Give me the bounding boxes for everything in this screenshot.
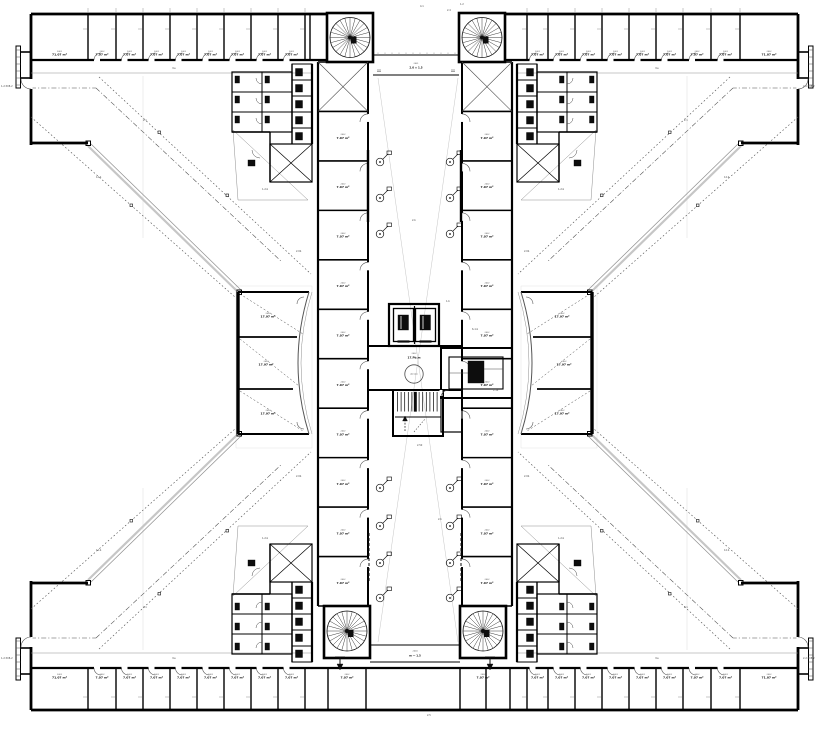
room-outline — [441, 398, 462, 432]
annotation-label: 2-2.508-2 — [803, 85, 815, 88]
room-area-label: 7.07 m² — [177, 676, 191, 680]
room-area-label: 7.07 m² — [481, 334, 495, 338]
room-area-label: 7.07 m² — [337, 581, 351, 585]
main-stair — [393, 390, 443, 436]
annotation-label: ms — [655, 67, 659, 70]
wall-line — [453, 190, 459, 196]
plan-path — [526, 297, 533, 304]
room-area-label: 7.07 m² — [481, 482, 495, 486]
plan-path — [297, 297, 304, 304]
room-area-label: 7.07 m² — [691, 53, 705, 57]
room-outline — [414, 392, 417, 412]
room-outline — [468, 361, 484, 383]
quadrant-bottom-left — [16, 429, 312, 680]
annotation-label: 1-2.508-2 — [1, 85, 13, 88]
room-area-label: 7.07 m² — [663, 53, 677, 57]
annotation-label: ms — [172, 657, 176, 660]
annotation-label: 2.b — [438, 518, 442, 521]
room-area-label: 7.07 m² — [691, 676, 705, 680]
room-area-label: 71.07 m² — [762, 53, 778, 57]
room-area-label: 7.07 m² — [150, 676, 164, 680]
annotation-label: 2.0b — [524, 475, 530, 478]
mid-right-rooms: 240217.97 m²240217.97 m²240217.97 m² — [518, 292, 592, 434]
room-area-label: 7.07 m² — [481, 383, 495, 387]
top-bridge: 24012.0 × 1.5 — [373, 53, 459, 76]
annotation-label: 1.14 — [493, 389, 499, 392]
annotation-label: 1-2.508-2 — [1, 657, 13, 660]
left-room-column: 24027.07 m²24027.07 m²24027.07 m²24027.0… — [318, 62, 369, 606]
room-area-label: 7.07 m² — [477, 676, 491, 680]
plan-label: 2401 — [413, 63, 419, 65]
right-room-column: 24027.07 m²24027.07 m²24027.07 m²24027.0… — [461, 62, 512, 606]
annotation-label: 1-2.b — [558, 188, 565, 191]
wall-line — [453, 154, 459, 160]
annotation-label: 12.b — [724, 549, 730, 552]
room-area-label: 7.07 m² — [481, 284, 495, 288]
room-area-label: 17.97 m² — [261, 412, 277, 416]
wall-line — [453, 226, 459, 232]
wall-line — [453, 590, 459, 596]
quadrant-top-right — [517, 46, 813, 297]
service-core-cluster — [232, 544, 312, 662]
room-area-label: 7.07 m² — [531, 676, 545, 680]
annotation-label: 1-2.b — [262, 537, 269, 540]
central-core: 240217.Pb.mØ1500 — [368, 304, 512, 436]
annotation-label: 2.1 — [684, 606, 688, 609]
room-area-label: 7.07 m² — [337, 383, 351, 387]
room-area-label: 7.07 m² — [609, 53, 623, 57]
room-area-label: 7.07 m² — [204, 53, 218, 57]
room-area-label: 7.07 m² — [337, 185, 351, 189]
room-area-label: 17.97 m² — [261, 315, 277, 319]
room-area-label: 17.97 m² — [557, 363, 573, 367]
room-area-label: 7.07 m² — [337, 433, 351, 437]
room-area-label: 7.07 m² — [337, 482, 351, 486]
room-area-label: 71.07 m² — [762, 676, 778, 680]
service-core-cluster — [517, 544, 597, 662]
room-area-label: 7.07 m² — [285, 676, 299, 680]
annotation-label: 12.b — [96, 549, 102, 552]
wall-line — [383, 555, 389, 561]
room-area-label: 7.07 m² — [719, 53, 733, 57]
room-area-label: 71.07 m² — [52, 676, 68, 680]
annotation-label: 12.b — [96, 176, 102, 179]
mid-left-rooms: 240217.97 m²240217.97 m²240217.97 m² — [238, 292, 312, 434]
annotation-label: 2.1 — [684, 119, 688, 122]
room-area-label: 7.07 m² — [582, 53, 596, 57]
quadrant-bottom-right — [517, 429, 813, 680]
plan-path — [298, 292, 309, 434]
plan-label: 2.0 × 1.5 — [409, 66, 422, 70]
quadrant-top-left — [16, 46, 312, 297]
room-area-label: 7.07 m² — [231, 676, 245, 680]
room-area-label: 7.07 m² — [481, 235, 495, 239]
room-area-label: 71.07 m² — [52, 53, 68, 57]
construction-lines — [143, 76, 687, 650]
annotation-label: 2.50 — [417, 444, 423, 447]
annotation-label: 2.0b — [296, 250, 302, 253]
plan-label: 17.Pb.m — [408, 356, 421, 360]
room-area-label: 17.97 m² — [555, 412, 571, 416]
room-area-label: 7.07 m² — [555, 676, 569, 680]
wall-line — [453, 480, 459, 486]
annotation-label: 6-1.b — [472, 328, 479, 331]
annotation-label: 2.0b — [296, 475, 302, 478]
room-area-label: 17.97 m² — [555, 315, 571, 319]
room-area-label: 7.07 m² — [285, 53, 299, 57]
annotation-label: 1.2 — [460, 3, 464, 6]
room-area-label: 7.07 m² — [337, 136, 351, 140]
plan-label: m — 1.5 — [409, 654, 421, 658]
wall-line — [383, 518, 389, 524]
annotation-label: 4.1 — [420, 5, 424, 8]
room-area-label: 7.07 m² — [481, 531, 495, 535]
plan-path — [301, 292, 312, 434]
bottom-wing: 240271.07 m²24027.07 m²24027.07 m²24027.… — [31, 668, 798, 710]
room-area-label: 7.07 m² — [177, 53, 191, 57]
room-area-label: 7.07 m² — [609, 676, 623, 680]
stair-tower — [460, 606, 506, 658]
lift-lobby: 240217.Pb.mØ1500 — [368, 346, 462, 390]
annotation-label: 12.b — [724, 176, 730, 179]
room-outline — [393, 390, 443, 436]
floor-plan-canvas: 240271.07 m²24027.07 m²24027.07 m²24027.… — [0, 0, 833, 732]
room-area-label: 7.07 m² — [231, 53, 245, 57]
room-area-label: 7.07 m² — [481, 136, 495, 140]
wall-line — [383, 154, 389, 160]
wall-line — [453, 518, 459, 524]
annotation-label: ms — [172, 67, 176, 70]
room-area-label: 7.07 m² — [96, 676, 110, 680]
room-area-label: 7.07 m² — [481, 581, 495, 585]
annotation-label: 2.4 — [447, 9, 451, 12]
room-area-label: 7.07 m² — [123, 53, 137, 57]
room-area-label: 7.07 m² — [337, 284, 351, 288]
annotation-label: 2.5 — [427, 714, 431, 717]
room-area-label: 7.07 m² — [258, 53, 272, 57]
room-area-label: 7.07 m² — [555, 53, 569, 57]
room-outline — [398, 315, 409, 330]
plan-path — [518, 292, 529, 434]
room-area-label: 7.07 m² — [150, 53, 164, 57]
room-area-label: 7.07 m² — [123, 676, 137, 680]
floor-plan: 240271.07 m²24027.07 m²24027.07 m²24027.… — [0, 0, 833, 732]
room-outline — [236, 286, 312, 448]
annotation-label: 2.0b — [524, 250, 530, 253]
stair-tower — [324, 606, 370, 658]
stair-tower — [327, 13, 373, 62]
room-area-label: 7.07 m² — [481, 185, 495, 189]
annotation-label: ms — [655, 657, 659, 660]
service-core-cluster — [232, 64, 312, 182]
room-area-label: 17.97 m² — [259, 363, 275, 367]
top-wing: 240271.07 m²24027.07 m²24027.07 m²24027.… — [31, 8, 798, 60]
service-core-cluster — [517, 64, 597, 182]
room-area-label: 7.07 m² — [531, 53, 545, 57]
room-area-label: 7.07 m² — [96, 53, 110, 57]
wall-line — [414, 419, 425, 432]
wall-line — [383, 480, 389, 486]
room-area-label: 7.07 m² — [337, 235, 351, 239]
room-area-label: 7.07 m² — [636, 53, 650, 57]
plan-label: Ø1500 — [410, 373, 418, 376]
wall-line — [453, 555, 459, 561]
annotation-label: 1.b — [446, 300, 450, 303]
stair-tower — [459, 13, 505, 62]
plan-path — [521, 292, 532, 434]
room-area-label: 7.07 m² — [341, 676, 355, 680]
annotation-label: 2.b — [412, 219, 416, 222]
room-area-label: 7.07 m² — [719, 676, 733, 680]
annotations: 4.12.41.2msmsmsms2.12.12.12.112.b12.b12.… — [1, 3, 815, 717]
annotation-label: 1-2.b — [262, 188, 269, 191]
annotation-label: 2.1 — [143, 119, 147, 122]
annotation-label: 2.1 — [143, 606, 147, 609]
room-area-label: 7.07 m² — [636, 676, 650, 680]
plan-label: 2404 — [412, 651, 418, 653]
room-area-label: 7.07 m² — [258, 676, 272, 680]
room-area-label: 7.07 m² — [337, 531, 351, 535]
room-area-label: 7.07 m² — [582, 676, 596, 680]
room-outline — [420, 315, 431, 330]
annotation-label: 1-2.b — [558, 537, 565, 540]
wall-line — [383, 190, 389, 196]
room-area-label: 7.07 m² — [204, 676, 218, 680]
wall-line — [383, 226, 389, 232]
room-area-label: 7.07 m² — [481, 433, 495, 437]
annotation-label: 2-2.508-2 — [803, 657, 815, 660]
room-area-label: 7.07 m² — [663, 676, 677, 680]
room-area-label: 7.07 m² — [337, 334, 351, 338]
